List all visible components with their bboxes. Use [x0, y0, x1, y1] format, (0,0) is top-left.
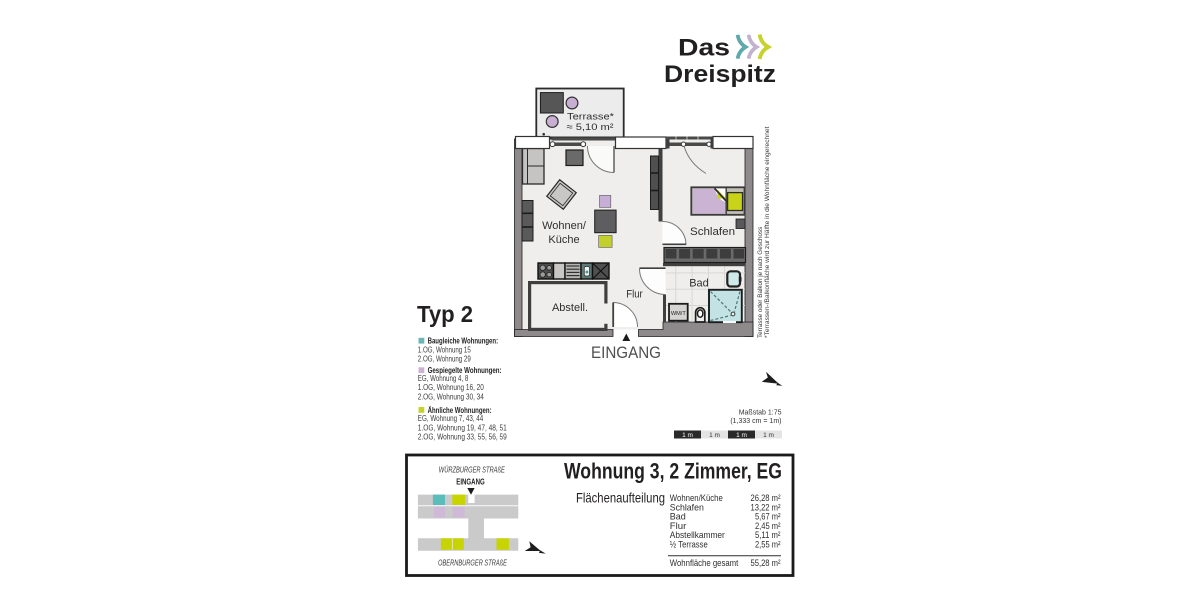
svg-text:EINGANG: EINGANG [456, 477, 485, 487]
svg-text:OBERNBURGER STRAßE: OBERNBURGER STRAßE [438, 558, 507, 567]
svg-text:Abstell.: Abstell. [552, 302, 588, 314]
svg-text:1 m: 1 m [736, 432, 747, 439]
svg-text:Wohnung 3, 2 Zimmer, EG: Wohnung 3, 2 Zimmer, EG [564, 459, 782, 484]
svg-text:55,28 m²: 55,28 m² [751, 557, 781, 568]
svg-text:Küche: Küche [548, 234, 579, 246]
svg-text:2,55 m²: 2,55 m² [755, 539, 781, 550]
svg-text:Flächenaufteilung: Flächenaufteilung [576, 490, 665, 506]
svg-text:½ Terrasse: ½ Terrasse [670, 539, 708, 550]
svg-text:Baugleiche Wohnungen:: Baugleiche Wohnungen: [428, 337, 499, 346]
svg-text:Terrasse*: Terrasse* [567, 112, 615, 122]
svg-text:Typ 2: Typ 2 [417, 301, 473, 327]
svg-text:1 m: 1 m [709, 432, 720, 439]
svg-text:EG, Wohnung 4, 8: EG, Wohnung 4, 8 [418, 374, 469, 383]
svg-text:Schlafen: Schlafen [690, 226, 735, 238]
svg-text:2.OG, Wohnung 29: 2.OG, Wohnung 29 [418, 354, 471, 363]
svg-text:1.OG, Wohnung 19, 47, 48, 51: 1.OG, Wohnung 19, 47, 48, 51 [418, 423, 507, 432]
svg-text:≈ 5,10 m²: ≈ 5,10 m² [567, 122, 614, 133]
svg-text:1.OG, Wohnung 15: 1.OG, Wohnung 15 [418, 345, 472, 354]
svg-text:Terrasse oder Balkon je nach G: Terrasse oder Balkon je nach Geschoss [757, 227, 764, 338]
svg-text:1.OG, Wohnung 16, 20: 1.OG, Wohnung 16, 20 [418, 383, 485, 392]
svg-text:WÜRZBURGER STRAßE: WÜRZBURGER STRAßE [439, 466, 505, 475]
svg-text:WM/T: WM/T [671, 311, 686, 317]
svg-text:1 m: 1 m [682, 432, 693, 439]
svg-text:EG, Wohnung 7, 43, 44: EG, Wohnung 7, 43, 44 [418, 414, 484, 423]
svg-text:1 m: 1 m [763, 432, 774, 439]
svg-text:Maßstab 1:75: Maßstab 1:75 [739, 410, 782, 417]
svg-text:Wohnen/: Wohnen/ [542, 220, 587, 232]
svg-text:Das: Das [678, 35, 730, 62]
svg-text:Dreispitz: Dreispitz [664, 61, 776, 88]
svg-text:(1,333 cm = 1m): (1,333 cm = 1m) [730, 418, 781, 425]
svg-text:Flur: Flur [626, 289, 643, 301]
svg-text:Bad: Bad [689, 278, 709, 290]
svg-text:2.OG, Wohnung 30, 34: 2.OG, Wohnung 30, 34 [418, 392, 485, 401]
svg-text:Wohnfläche gesamt: Wohnfläche gesamt [670, 557, 739, 568]
svg-text:2.OG, Wohnung 33, 55, 56, 59: 2.OG, Wohnung 33, 55, 56, 59 [418, 432, 507, 441]
svg-text:*Terrassen-/Balkonfläche wird: *Terrassen-/Balkonfläche wird zur Hälfte… [764, 126, 771, 338]
svg-text:EINGANG: EINGANG [591, 344, 661, 362]
